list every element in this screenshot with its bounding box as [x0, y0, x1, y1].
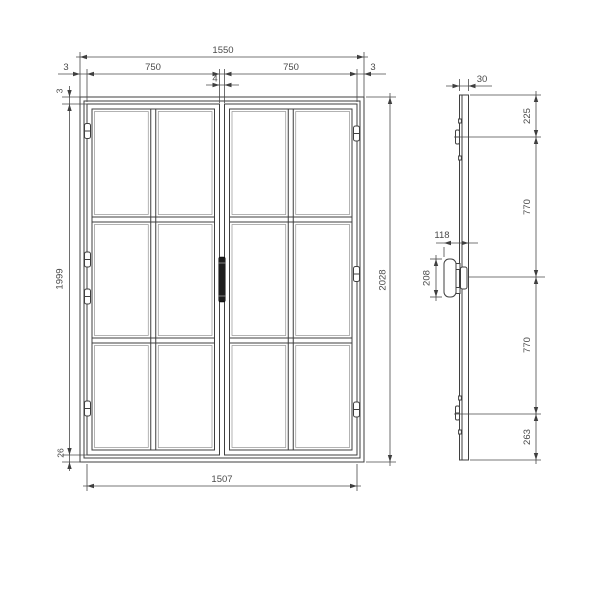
dim-gap-bottom-label: 26: [56, 448, 66, 458]
dim-leaf-left-label: 750: [145, 62, 161, 73]
drawing-canvas: 1550 3 750 750 3 4: [0, 0, 600, 600]
dim-total-width-label: 1550: [212, 45, 233, 56]
fixing-mark: [459, 396, 462, 400]
dim-top-to-hinge-label: 225: [522, 108, 533, 124]
glass-pane: [232, 225, 286, 336]
front-view: 1550 3 750 750 3 4: [55, 45, 397, 491]
glass-pane: [95, 112, 149, 215]
glass-pane: [158, 346, 212, 448]
door-leaf-right: [225, 104, 358, 455]
glass-pane: [158, 225, 212, 336]
dim-leaf-right-label: 750: [283, 62, 299, 73]
latch-plate: [461, 267, 468, 289]
dim-profile-depth-label: 30: [477, 74, 488, 85]
glass-pane: [296, 346, 350, 448]
glass-pane: [296, 225, 350, 336]
dim-gap-top-label: 3: [55, 88, 65, 93]
fixing-mark: [459, 119, 462, 123]
dim-handle-length: 208: [422, 255, 443, 301]
dim-bottom-width-label: 1507: [211, 474, 232, 485]
dim-center-gap: 4: [206, 74, 239, 88]
dim-bottom-width: 1507: [83, 464, 361, 491]
dim-frame-height-label: 2028: [378, 269, 389, 290]
dim-handle-projection: 118: [434, 230, 478, 257]
dim-frame-height: 2028: [366, 93, 396, 466]
glass-pane: [296, 112, 350, 215]
dim-hinge-to-handle-label: 770: [522, 199, 533, 215]
fixing-mark: [459, 430, 462, 434]
handle-profile: [444, 259, 456, 297]
dim-profile-depth: 30: [446, 74, 492, 91]
handle-bracket: [456, 264, 460, 270]
dim-total-width: 1550: [76, 45, 368, 97]
dim-leaf-height-label: 1999: [55, 268, 66, 289]
dim-handle-projection-label: 118: [434, 230, 449, 241]
dim-side-chain: 225 770 770 263: [454, 91, 545, 464]
dim-gap-left-label: 3: [63, 62, 68, 73]
glass-pane: [95, 346, 149, 448]
glass-pane: [232, 346, 286, 448]
door-technical-drawing: 1550 3 750 750 3 4: [0, 0, 600, 600]
door-handle-front: [219, 257, 226, 302]
handle-bracket: [456, 288, 460, 294]
door-leaf-left: [87, 104, 220, 455]
dim-handle-length-label: 208: [422, 270, 433, 286]
dim-handle-to-hinge-label: 770: [522, 337, 533, 353]
side-view: 30 118 208: [422, 74, 546, 464]
glass-pane: [95, 225, 149, 336]
hinge-side-bottom: [456, 406, 460, 420]
dim-left-chain: 3 1999 26: [55, 86, 89, 471]
glass-pane: [158, 112, 212, 215]
door-handle-side: [444, 259, 467, 297]
fixing-mark: [459, 156, 462, 160]
dim-center-gap-label: 4: [212, 74, 217, 85]
dim-gap-right-label: 3: [370, 62, 375, 73]
dim-hinge-to-bottom-label: 263: [522, 429, 533, 445]
glass-pane: [232, 112, 286, 215]
